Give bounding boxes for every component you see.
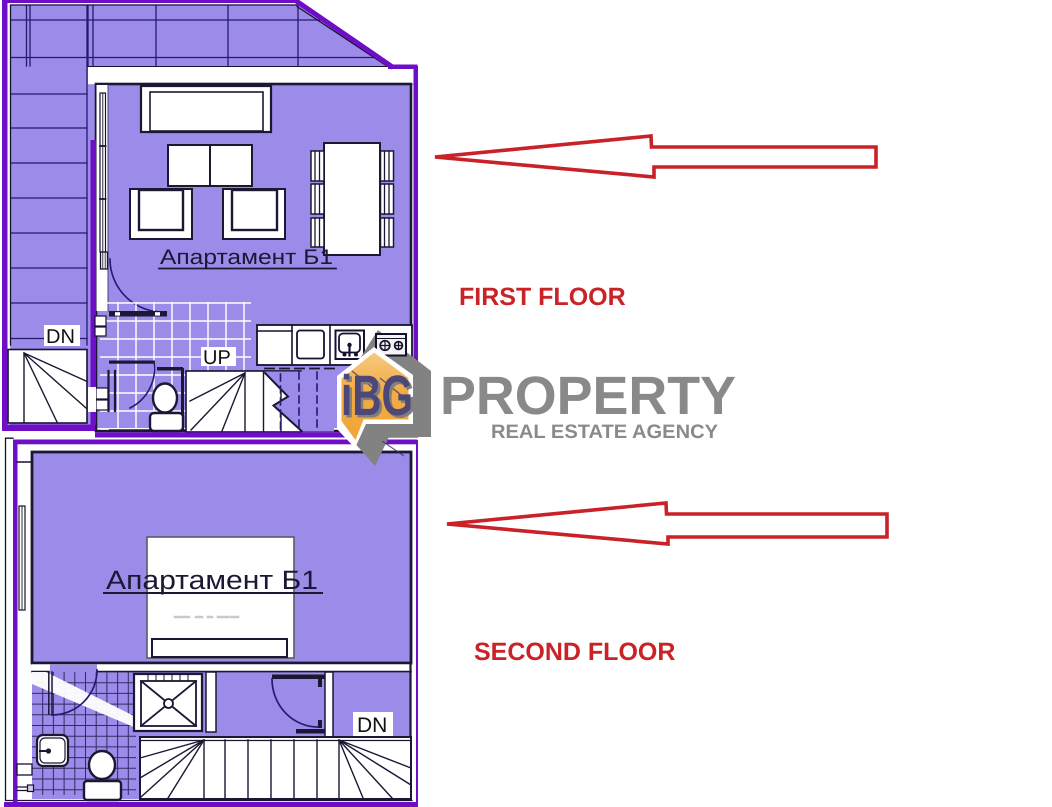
svg-text:iBG: iBG — [341, 364, 413, 428]
svg-text:DN: DN — [357, 714, 387, 737]
svg-text:UP: UP — [203, 347, 231, 369]
svg-text:REAL ESTATE AGENCY: REAL ESTATE AGENCY — [491, 421, 718, 443]
svg-text:DN: DN — [46, 326, 75, 348]
svg-text:PROPERTY: PROPERTY — [440, 366, 736, 426]
svg-text:Апартамент Б1: Апартамент Б1 — [160, 246, 333, 269]
svg-text:FIRST FLOOR: FIRST FLOOR — [459, 283, 626, 311]
svg-text:SECOND FLOOR: SECOND FLOOR — [474, 638, 675, 666]
svg-text:Апартамент Б1: Апартамент Б1 — [106, 565, 318, 595]
